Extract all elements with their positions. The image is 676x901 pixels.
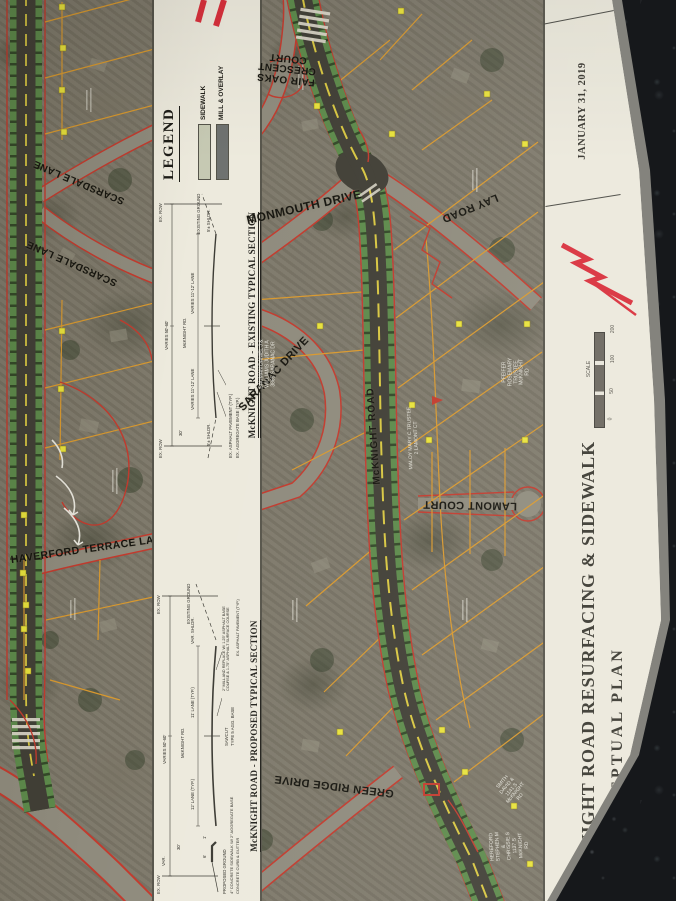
map-right-graphics (262, 0, 543, 901)
parcel-label-bauman: BAUMAN DANIEL J & WILLIAMS JUDITH A 3865… (259, 339, 276, 388)
pr-curb-note: CONCRETE CURB & GUTTER (235, 838, 240, 894)
pr-row-left: EX. ROW (156, 875, 161, 894)
scale-bar (594, 332, 605, 428)
ex-offset-dim: 30' (178, 430, 183, 436)
title-block-divider-top (544, 8, 623, 24)
proposed-section-title: McKNIGHT ROAD - PROPOSED TYPICAL SECTION (249, 620, 263, 851)
legend-label-sidewalk: SIDEWALK (200, 86, 207, 120)
pr-centerline-label: McKNIGHT RD. (180, 728, 185, 758)
ex-lane-right: VARIES 11'-12' LANE (190, 273, 195, 314)
pr-lane-right: 11' LANE (TYP.) (190, 687, 195, 718)
ex-row-right: EX. ROW (158, 203, 163, 222)
ex-lane-left: VARIES 11'-12' LANE (190, 369, 195, 410)
legend-title: LEGEND (161, 106, 180, 182)
scale-tick-200: 200 (610, 325, 616, 333)
street-label-fair-oaks-crescent-court: FAIR OAKS CRESCENT COURT (254, 49, 321, 87)
pr-var-left: VAR. (161, 856, 166, 866)
date-block: JANUARY 31, 2019 (568, 56, 596, 166)
photo-scene: SCARSDALE LANE SCARSDALE LANE HAVERFORD … (0, 0, 676, 901)
legend-swatch-mill-overlay (216, 124, 229, 180)
center-band: LEGEND SIDEWALK MILL & OVERLAY (152, 0, 262, 901)
pr-sidewalk-width: 6' (202, 855, 207, 858)
ex-shoulder-right: 5'± SHLDR. (206, 209, 211, 232)
map-left-graphics (0, 0, 152, 901)
existing-typical-section: EX. ROW EX. ROW VARIES 50'-60' 30' McKNI… (158, 188, 258, 462)
map-panel-right: FAIR OAKS CRESCENT COURT MONMOUTH DRIVE … (262, 0, 543, 901)
map-panel-left: SCARSDALE LANE SCARSDALE LANE HAVERFORD … (0, 0, 152, 901)
parcel-label-maloy: MALOY MARY C TRUSTEE 2 LAMONT CT (407, 406, 421, 469)
pr-agg-base: TYPE 5 AGG. BASE (230, 707, 235, 746)
parcel-label-hereford: HEREFORD STEPHEN M & CHRISSIE S 1137 S M… (489, 828, 531, 863)
plan-sheet: SCARSDALE LANE SCARSDALE LANE HAVERFORD … (0, 0, 676, 901)
pr-pavement-label: EX. ASPHALT PAVEMENT (TYP.) (236, 599, 240, 656)
parcel-label-pfeifer: PFEIFER ROSEMARY TRUSTEE McKNIGHT RD (503, 358, 532, 386)
pr-lane-left: 12' LANE (TYP.) (190, 779, 195, 810)
scale-tick-0: 0 (607, 418, 613, 421)
pr-sawcut: SAWCUT (224, 728, 229, 746)
ex-ground-label: EXISTING GROUND (196, 194, 201, 234)
ex-row-left: EX. ROW (158, 439, 163, 458)
scale-label: SCALE (586, 361, 592, 377)
ex-overall-dim: VARIES 50'-60' (164, 321, 169, 350)
legend-swatch-sidewalk (198, 124, 211, 180)
legend-label-mill-overlay: MILL & OVERLAY (218, 66, 225, 120)
pr-row-right: EX. ROW (156, 595, 161, 614)
pr-offset-dim: 30' (176, 844, 181, 850)
pr-overall-dim: VARIES 50'-60' (162, 735, 167, 764)
legend: LEGEND SIDEWALK MILL & OVERLAY (158, 58, 258, 186)
pr-mill-note: 2" MILL AND REPLACE W/ 1.25" ASPHALT BAS… (222, 591, 231, 691)
scale-tick-50: 50 (609, 388, 615, 394)
logo-mark (550, 235, 645, 335)
pr-proposed-ground: PROPOSED GROUND (222, 849, 227, 894)
date-label: JANUARY 31, 2019 (568, 56, 596, 166)
ex-centerline-label: McKNIGHT RD. (182, 318, 187, 348)
ex-shoulder-left: 5'± SHLDR. (206, 423, 211, 446)
title-block-divider-bottom (545, 194, 620, 207)
pr-buffer-width: 1' (202, 836, 207, 839)
scale-tick-100: 100 (610, 355, 616, 363)
pr-ground-label: EXISTING GROUND (186, 584, 191, 624)
ex-pavement-label: EX. ASPHALT PAVEMENT (TYP.) (228, 394, 233, 458)
street-label-lamont-court: LAMONT COURT (423, 498, 517, 512)
red-stamp-cropped (194, 0, 238, 30)
pr-sidewalk-note: 4" CONCRETE SIDEWALK W/ 2" AGGREGATE BAS… (229, 797, 234, 894)
proposed-typical-section: EX. ROW VAR. EX. ROW VARIES 50'-60' 30' … (156, 576, 260, 896)
